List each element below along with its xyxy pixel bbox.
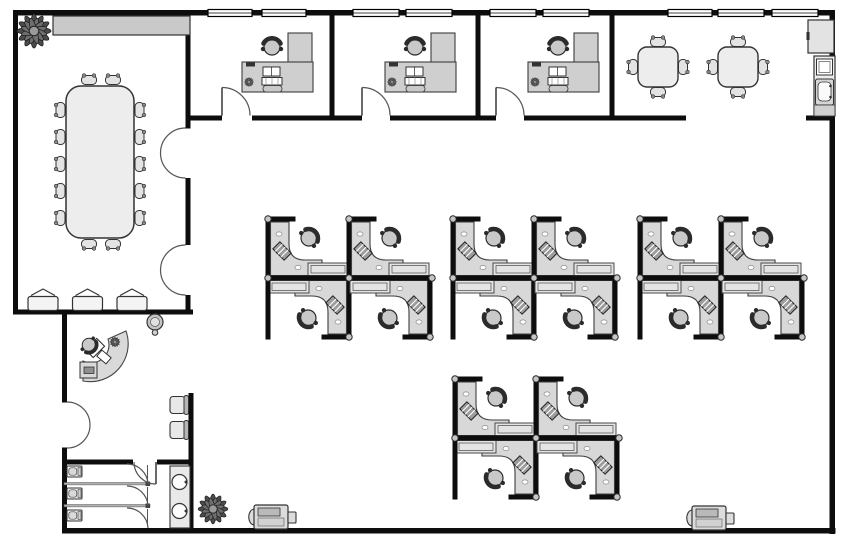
wall-breakroom-south-a <box>612 116 686 121</box>
wall-conference-east-b <box>186 178 191 245</box>
toilet-3 <box>67 510 82 521</box>
windows <box>208 10 818 17</box>
sink-counter <box>170 466 190 528</box>
wall-restroom-north-b <box>157 460 191 465</box>
stall-divider-2 <box>64 505 150 507</box>
window-segment <box>353 10 399 17</box>
refrigerator <box>807 20 835 53</box>
waiting-chair-2 <box>170 421 189 440</box>
credenza <box>53 16 190 35</box>
window-segment <box>668 10 712 17</box>
wall-office-divider-1 <box>330 10 335 121</box>
sink-icon <box>816 79 834 105</box>
stall-divider-1 <box>64 483 150 485</box>
office-floor-plan <box>0 0 850 546</box>
toilet-2 <box>67 488 82 499</box>
wall-left-upper <box>13 10 18 315</box>
waiting-chair-1 <box>170 396 189 415</box>
window-segment <box>543 10 589 17</box>
wall-left-lower-a <box>62 310 67 403</box>
wall-office1-south-a <box>190 116 222 121</box>
wall-office-divider-2 <box>476 10 481 121</box>
wall-office-south-b <box>252 116 362 121</box>
window-segment <box>718 10 764 17</box>
kitchen-counter <box>814 56 835 116</box>
window-segment <box>406 10 452 17</box>
toilet-1 <box>67 466 82 477</box>
floor-plan-canvas <box>0 0 850 546</box>
wall-office-south-d <box>524 116 612 121</box>
wall-restroom-north-a <box>62 460 133 465</box>
window-segment <box>490 10 536 17</box>
window-segment <box>208 10 252 17</box>
keyboard-icon <box>84 367 94 374</box>
window-segment <box>262 10 306 17</box>
wall-conference-east-c <box>186 295 191 315</box>
wall-office-breakroom-divider <box>610 10 615 121</box>
conference-table <box>66 86 134 238</box>
window-segment <box>772 10 818 17</box>
